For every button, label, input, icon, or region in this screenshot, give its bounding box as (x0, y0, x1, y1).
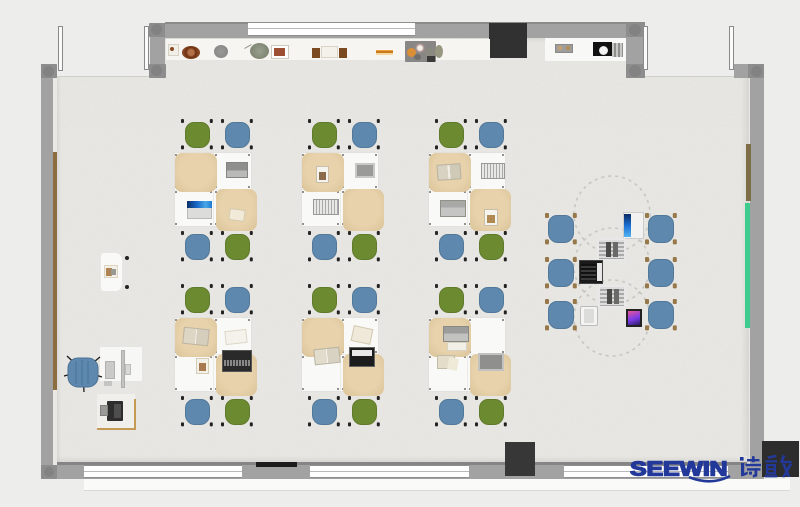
svg-text:SEEWIN: SEEWIN (630, 457, 727, 480)
